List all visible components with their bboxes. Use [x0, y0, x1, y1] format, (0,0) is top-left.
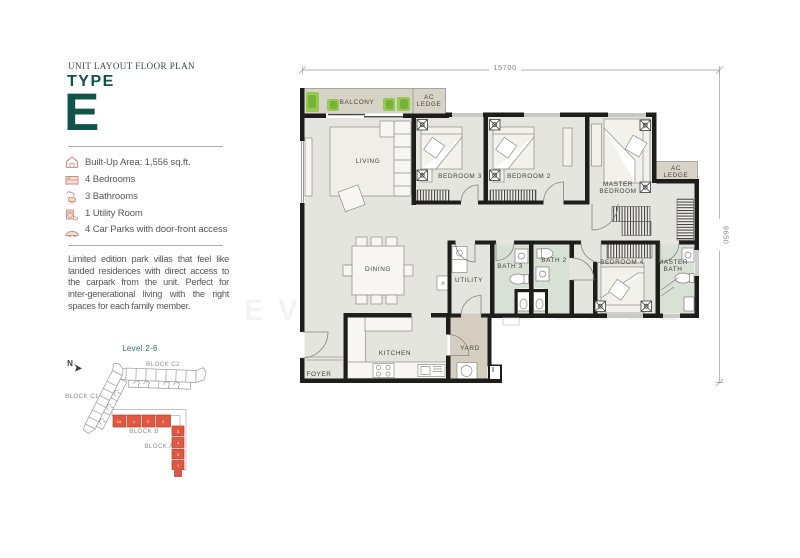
svg-text:1: 1	[177, 464, 179, 468]
svg-text:MASTER: MASTER	[658, 259, 688, 266]
svg-text:UTILITY: UTILITY	[455, 277, 483, 284]
svg-text:BEDROOM 3: BEDROOM 3	[438, 173, 482, 180]
svg-text:BLOCK C2: BLOCK C2	[146, 361, 180, 368]
svg-text:4: 4	[177, 442, 179, 446]
svg-text:BATH 2: BATH 2	[541, 257, 567, 264]
svg-text:AC: AC	[424, 94, 434, 101]
svg-text:BEDROOM: BEDROOM	[599, 188, 636, 195]
svg-text:BATH 3: BATH 3	[497, 263, 523, 270]
svg-text:3: 3	[162, 420, 164, 424]
svg-text:AC: AC	[671, 165, 681, 172]
svg-text:BEDROOM 2: BEDROOM 2	[507, 173, 551, 180]
svg-text:YARD: YARD	[460, 345, 480, 352]
svg-text:BLOCK B: BLOCK B	[129, 428, 159, 435]
svg-text:LIVING: LIVING	[356, 158, 381, 165]
svg-text:BALCONY: BALCONY	[340, 99, 375, 106]
svg-text:Level 2-6: Level 2-6	[122, 344, 158, 353]
svg-text:BLOCK C1: BLOCK C1	[65, 393, 99, 400]
svg-text:BLOCK A: BLOCK A	[144, 443, 174, 450]
svg-text:FOYER: FOYER	[306, 371, 331, 378]
svg-text:1A: 1A	[117, 420, 122, 424]
svg-text:2: 2	[147, 420, 149, 424]
svg-text:3: 3	[177, 453, 179, 457]
svg-text:9650: 9650	[722, 226, 731, 245]
svg-text:BEDROOM 4: BEDROOM 4	[600, 259, 644, 266]
svg-text:BATH: BATH	[664, 266, 683, 273]
svg-text:N: N	[67, 359, 73, 368]
svg-text:KITCHEN: KITCHEN	[379, 350, 411, 357]
svg-text:1: 1	[133, 420, 135, 424]
svg-text:5: 5	[177, 430, 179, 434]
svg-text:DINING: DINING	[365, 266, 391, 273]
svg-text:MASTER: MASTER	[603, 181, 633, 188]
svg-text:LEDGE: LEDGE	[664, 172, 689, 179]
svg-text:15700: 15700	[493, 63, 516, 72]
svg-text:LEDGE: LEDGE	[417, 101, 442, 108]
